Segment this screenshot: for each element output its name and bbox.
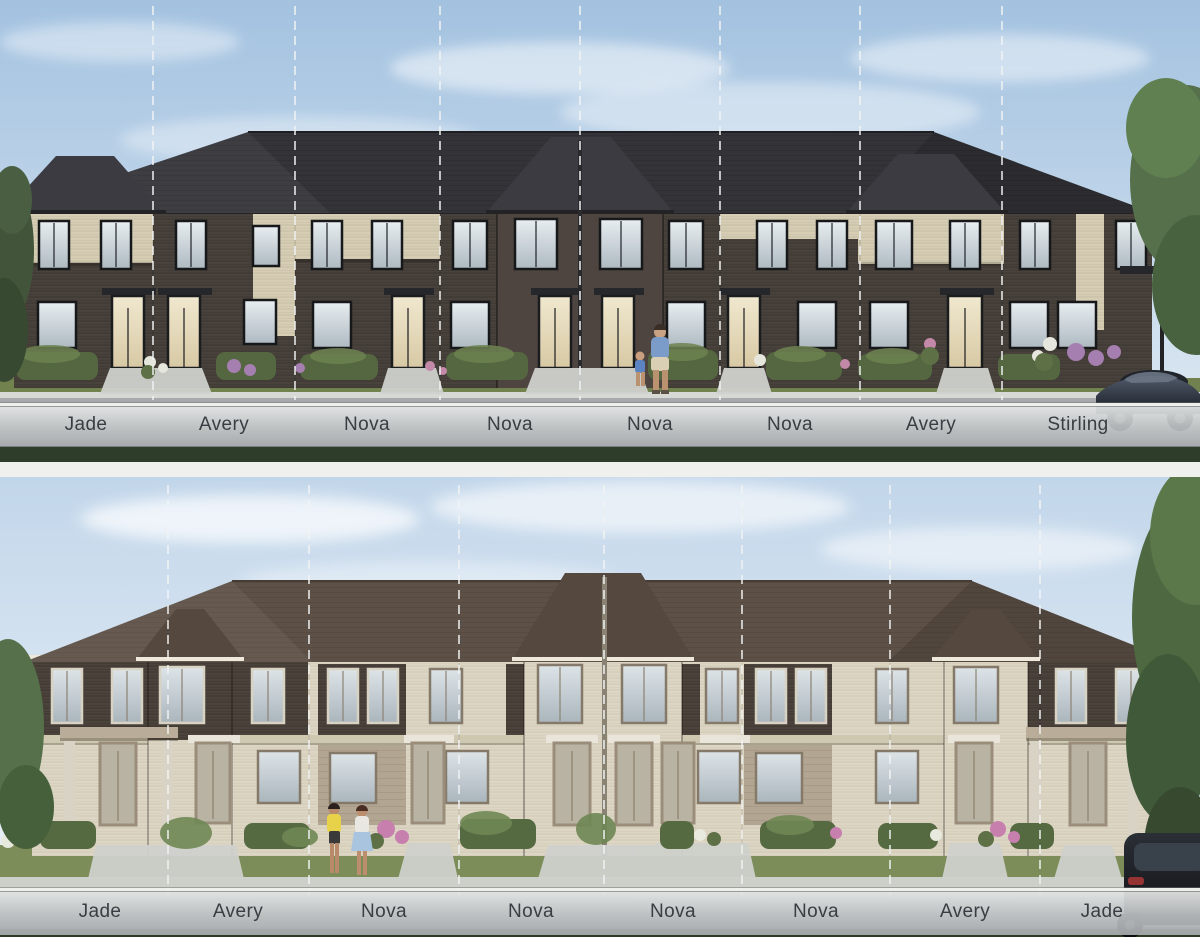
upper-streetscape-art [0,0,1200,462]
elevation-sheet: Jade Avery Nova Nova Nova Nova Avery Sti… [0,0,1200,937]
unit-label: Nova [627,406,673,444]
unit-label: Avery [213,891,263,933]
unit-label-bar-top: Jade Avery Nova Nova Nova Nova Avery Sti… [0,403,1200,446]
unit-label: Nova [487,406,533,444]
townhome-block [4,132,1166,388]
unit-label: Avery [199,406,249,444]
unit-label: Nova [344,406,390,444]
unit-label: Nova [361,891,407,933]
unit-label: Avery [940,891,990,933]
unit-label: Jade [65,406,108,444]
far-grass-strip [0,447,1200,462]
scene-divider [0,462,1200,477]
unit-label: Jade [1081,891,1124,933]
unit-label: Avery [906,406,956,444]
upper-streetscape-rendering: Jade Avery Nova Nova Nova Nova Avery Sti… [0,0,1200,462]
unit-label: Jade [79,891,122,933]
unit-label: Nova [793,891,839,933]
unit-label: Nova [650,891,696,933]
unit-label: Nova [508,891,554,933]
unit-label: Nova [767,406,813,444]
lower-streetscape-rendering: Jade Avery Nova Nova Nova Nova Avery Jad… [0,477,1200,937]
unit-label: Stirling [1047,406,1108,444]
unit-label-bar-bottom: Jade Avery Nova Nova Nova Nova Avery Jad… [0,888,1200,935]
lower-streetscape-art [0,477,1200,937]
